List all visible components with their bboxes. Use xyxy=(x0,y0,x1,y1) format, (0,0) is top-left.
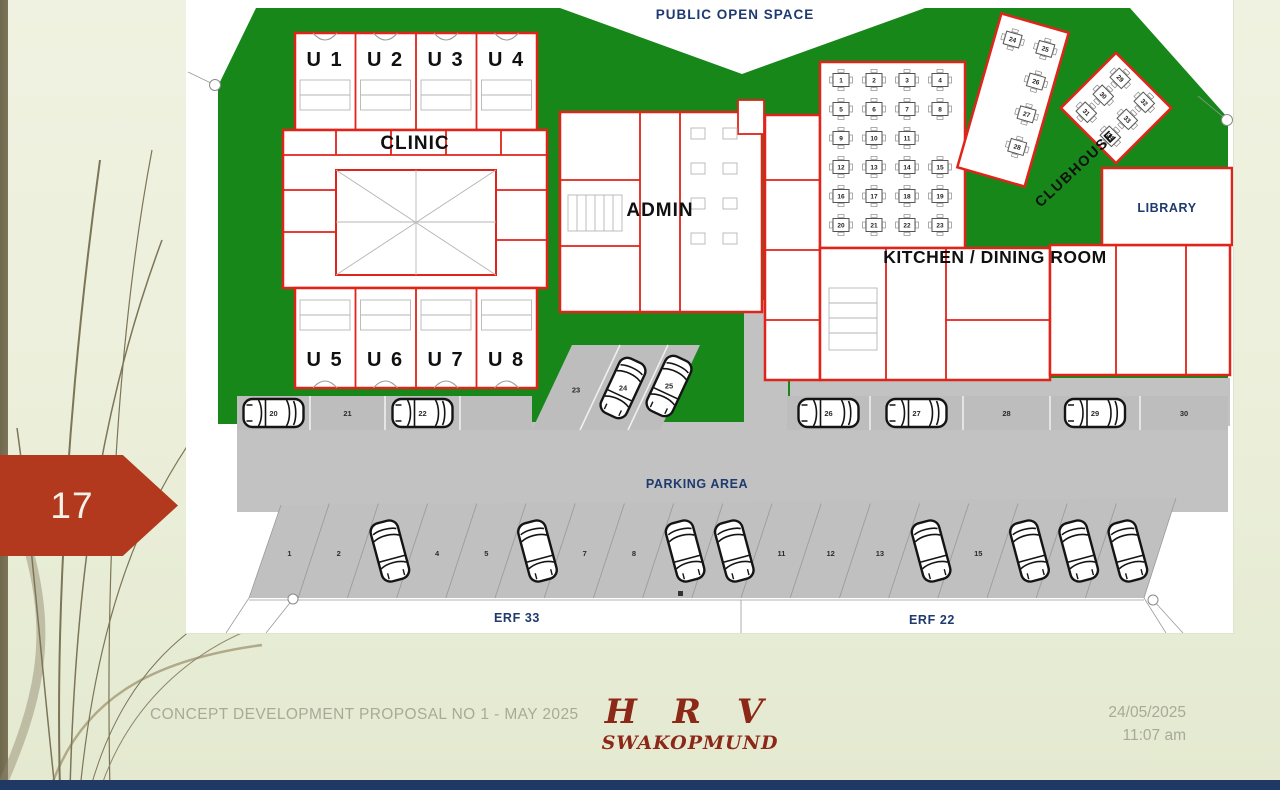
chair xyxy=(838,88,844,91)
chair xyxy=(838,233,844,236)
chair xyxy=(850,135,853,141)
parking-stall-number: 11 xyxy=(778,549,786,558)
unit-label: U 3 xyxy=(427,49,464,71)
chair xyxy=(830,106,833,112)
chair xyxy=(838,215,844,218)
table-number: 15 xyxy=(936,164,944,171)
parking-stall-number: 22 xyxy=(418,409,426,418)
building-kitchen xyxy=(820,248,1050,380)
parking-stall-number: 25 xyxy=(665,382,673,391)
chair xyxy=(850,164,853,170)
chair xyxy=(863,106,866,112)
chair xyxy=(937,88,943,91)
table-number: 8 xyxy=(938,106,942,113)
bottom-accent-bar xyxy=(0,780,1280,790)
chair xyxy=(929,222,932,228)
chair xyxy=(937,233,943,236)
brand-subtitle: SWAKOPMUND xyxy=(560,730,820,756)
chair xyxy=(850,77,853,83)
chair xyxy=(916,222,919,228)
table-number: 5 xyxy=(839,106,843,113)
chair xyxy=(937,215,943,218)
label-kitchen-dining: KITCHEN / DINING ROOM xyxy=(883,247,1106,267)
chair xyxy=(896,164,899,170)
building-kitchen-west xyxy=(765,115,820,380)
chair xyxy=(949,222,952,228)
chair xyxy=(949,106,952,112)
chair xyxy=(937,204,943,207)
chair xyxy=(904,204,910,207)
site-plan-panel: 202122262728293023242512457811121315 123… xyxy=(186,0,1234,634)
chair xyxy=(904,70,910,73)
parking-stall-number: 12 xyxy=(827,549,835,558)
page-number: 17 xyxy=(50,485,127,527)
chair xyxy=(883,77,886,83)
chair xyxy=(949,193,952,199)
table-number: 14 xyxy=(903,164,911,171)
chair xyxy=(838,99,844,102)
parking-stall-number: 8 xyxy=(632,549,636,558)
table-number: 4 xyxy=(938,77,942,84)
parking-stall-number: 20 xyxy=(269,409,277,418)
unit-label: U 8 xyxy=(488,349,525,371)
parking-stall-number: 13 xyxy=(876,549,884,558)
parking-stall-number: 21 xyxy=(343,409,351,418)
brand-title: H R V xyxy=(560,694,820,730)
chair xyxy=(838,117,844,120)
chair xyxy=(904,175,910,178)
chair xyxy=(871,128,877,131)
brand-block: H R V SWAKOPMUND xyxy=(560,694,820,756)
parking-stall-number: 1 xyxy=(287,549,291,558)
table-number: 13 xyxy=(870,164,878,171)
label-library: LIBRARY xyxy=(1137,201,1196,215)
chair xyxy=(838,146,844,149)
chair xyxy=(850,106,853,112)
chair xyxy=(904,88,910,91)
table-number: 16 xyxy=(837,193,845,200)
chair xyxy=(896,193,899,199)
table-number: 21 xyxy=(870,222,878,229)
label-erf-22: ERF 22 xyxy=(909,613,955,627)
chair xyxy=(904,215,910,218)
chair xyxy=(838,70,844,73)
unit-label: U 2 xyxy=(367,49,404,71)
chair xyxy=(937,117,943,120)
chair xyxy=(871,215,877,218)
table-number: 6 xyxy=(872,106,876,113)
table-number: 19 xyxy=(936,193,944,200)
chair xyxy=(896,135,899,141)
chair xyxy=(929,193,932,199)
chair xyxy=(830,193,833,199)
table-number: 17 xyxy=(870,193,878,200)
table-number: 18 xyxy=(903,193,911,200)
chair xyxy=(838,204,844,207)
parking-stall-number: 28 xyxy=(1002,409,1010,418)
chair xyxy=(830,135,833,141)
label-clinic: CLINIC xyxy=(380,133,449,154)
chair xyxy=(904,157,910,160)
parking-stall-number: 5 xyxy=(484,549,488,558)
footer-proposal-text: CONCEPT DEVELOPMENT PROPOSAL NO 1 - MAY … xyxy=(150,706,578,724)
chair xyxy=(949,77,952,83)
chair xyxy=(830,222,833,228)
parking-stall-number: 24 xyxy=(619,384,628,393)
chair xyxy=(863,77,866,83)
chair xyxy=(838,175,844,178)
chair xyxy=(838,157,844,160)
table-number: 10 xyxy=(870,135,878,142)
unit-label: U 4 xyxy=(488,49,525,71)
unit-label: U 1 xyxy=(306,49,343,71)
chair xyxy=(871,99,877,102)
chair xyxy=(929,164,932,170)
table-number: 11 xyxy=(904,135,911,142)
chair xyxy=(904,233,910,236)
chair xyxy=(916,106,919,112)
chair xyxy=(929,106,932,112)
chair xyxy=(863,164,866,170)
parking-stall-number: 15 xyxy=(974,549,982,558)
chair xyxy=(871,70,877,73)
table-number: 9 xyxy=(839,135,843,142)
chair xyxy=(916,77,919,83)
table-number: 1 xyxy=(839,77,843,84)
chair xyxy=(883,164,886,170)
chair xyxy=(896,77,899,83)
slide-date: 24/05/2025 xyxy=(1108,701,1186,724)
chair xyxy=(871,117,877,120)
table-number: 2 xyxy=(872,77,876,84)
chair xyxy=(871,146,877,149)
chair xyxy=(838,128,844,131)
chair xyxy=(904,146,910,149)
chair xyxy=(883,135,886,141)
chair xyxy=(904,128,910,131)
chair xyxy=(871,175,877,178)
chair xyxy=(871,157,877,160)
chair xyxy=(949,164,952,170)
site-plan: 202122262728293023242512457811121315 123… xyxy=(186,0,1233,633)
chair xyxy=(937,70,943,73)
label-erf-33: ERF 33 xyxy=(494,611,540,625)
chair xyxy=(937,175,943,178)
chair xyxy=(904,186,910,189)
table-number: 22 xyxy=(903,222,911,229)
chair xyxy=(937,99,943,102)
chair xyxy=(904,99,910,102)
chair xyxy=(850,222,853,228)
chair xyxy=(871,204,877,207)
chair xyxy=(937,186,943,189)
label-parking-area: PARKING AREA xyxy=(646,477,748,491)
slide-datetime: 24/05/2025 11:07 am xyxy=(1108,701,1186,747)
chair xyxy=(883,106,886,112)
chair xyxy=(863,135,866,141)
table-number: 7 xyxy=(905,106,909,113)
chair xyxy=(916,135,919,141)
label-public-open-space: PUBLIC OPEN SPACE xyxy=(656,7,815,22)
chair xyxy=(937,157,943,160)
chair xyxy=(929,77,932,83)
parking-stall-number: 23 xyxy=(572,386,580,395)
table-number: 3 xyxy=(905,77,909,84)
parking-stall-number: 26 xyxy=(824,409,832,418)
unit-label: U 6 xyxy=(367,349,404,371)
parking-stall-number: 29 xyxy=(1091,409,1099,418)
table-number: 23 xyxy=(936,222,944,229)
chair xyxy=(838,186,844,189)
chair xyxy=(871,186,877,189)
chair xyxy=(871,233,877,236)
chair xyxy=(830,164,833,170)
chair xyxy=(850,193,853,199)
parking-stall-number: 30 xyxy=(1180,409,1188,418)
parking-stall-number: 7 xyxy=(583,549,587,558)
table-number: 12 xyxy=(837,164,845,171)
table-number: 20 xyxy=(837,222,845,229)
chair xyxy=(904,117,910,120)
parking-stall-number: 27 xyxy=(912,409,920,418)
chair xyxy=(883,193,886,199)
unit-label: U 5 xyxy=(306,349,343,371)
chair xyxy=(916,193,919,199)
chair xyxy=(883,222,886,228)
chair xyxy=(830,77,833,83)
unit-label: U 7 xyxy=(427,349,464,371)
entrance-gate xyxy=(738,100,764,134)
slide-time: 11:07 am xyxy=(1108,724,1186,747)
chair xyxy=(863,193,866,199)
chair xyxy=(896,222,899,228)
chair xyxy=(916,164,919,170)
chair xyxy=(863,222,866,228)
parking-stall-number: 2 xyxy=(337,549,341,558)
chair xyxy=(896,106,899,112)
parking-road xyxy=(237,422,1228,512)
slide: { "slide": { "page_number": "17", "foote… xyxy=(0,0,1280,790)
chair xyxy=(871,88,877,91)
label-admin: ADMIN xyxy=(626,200,693,221)
